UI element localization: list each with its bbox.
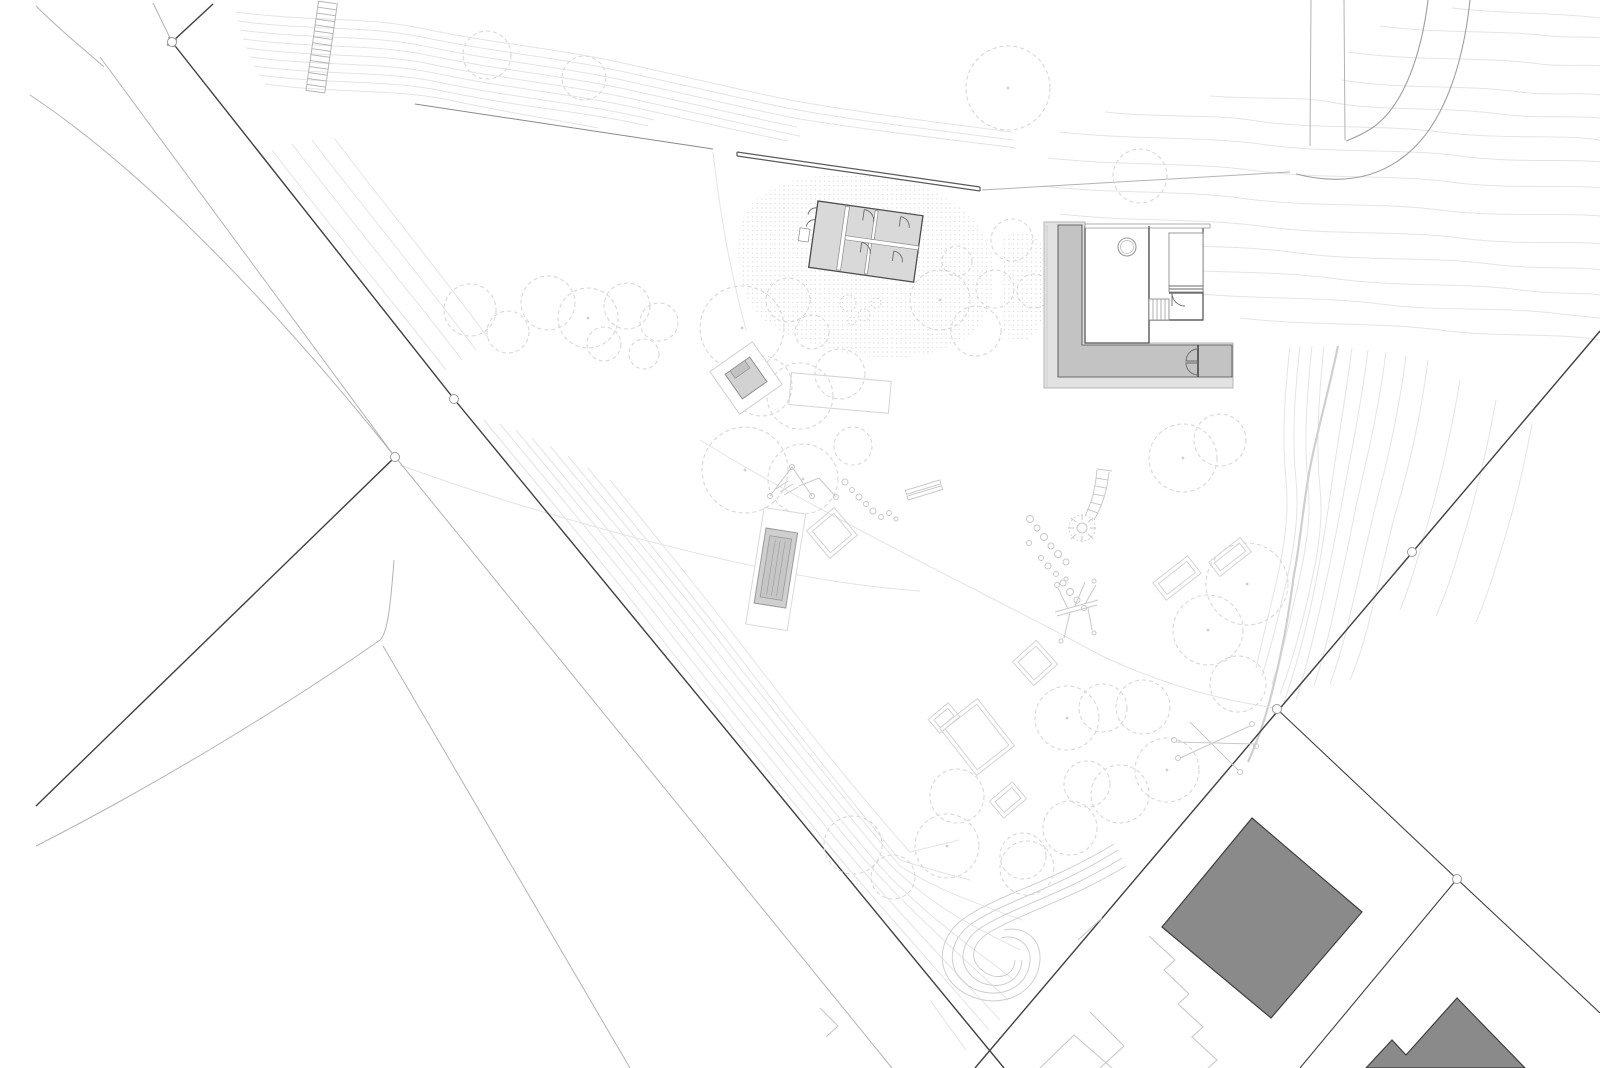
- survey-markers: [167, 37, 1461, 883]
- sandbox: [746, 507, 806, 630]
- play-house: [710, 342, 782, 414]
- slide: [1068, 469, 1112, 542]
- retaining-wall: [415, 104, 980, 191]
- bed: [1169, 233, 1203, 292]
- planting-beds: [789, 373, 1252, 818]
- neighbor-building-square: [1162, 818, 1362, 1018]
- stairs-interior: [1149, 299, 1169, 320]
- site-plan-canvas: [0, 0, 1600, 1068]
- neighbor-buildings: [1162, 818, 1525, 1068]
- neighbor-parcel-outlines: [820, 918, 1217, 1068]
- site-plan-page: [0, 0, 1600, 1068]
- tree-canopies: [444, 31, 1288, 899]
- contour-lines: [236, 8, 1600, 1050]
- neighbor-building-partial: [1366, 998, 1525, 1068]
- climbing-net: [768, 465, 839, 500]
- balance-beams: [905, 480, 942, 500]
- log-climber-2: [1172, 722, 1259, 775]
- canopy-edge: [1085, 224, 1210, 228]
- stepping-stones: [842, 479, 1087, 611]
- l-shaped-building: [1044, 222, 1233, 388]
- log-climber: [1055, 577, 1099, 643]
- main-room: [1085, 227, 1149, 343]
